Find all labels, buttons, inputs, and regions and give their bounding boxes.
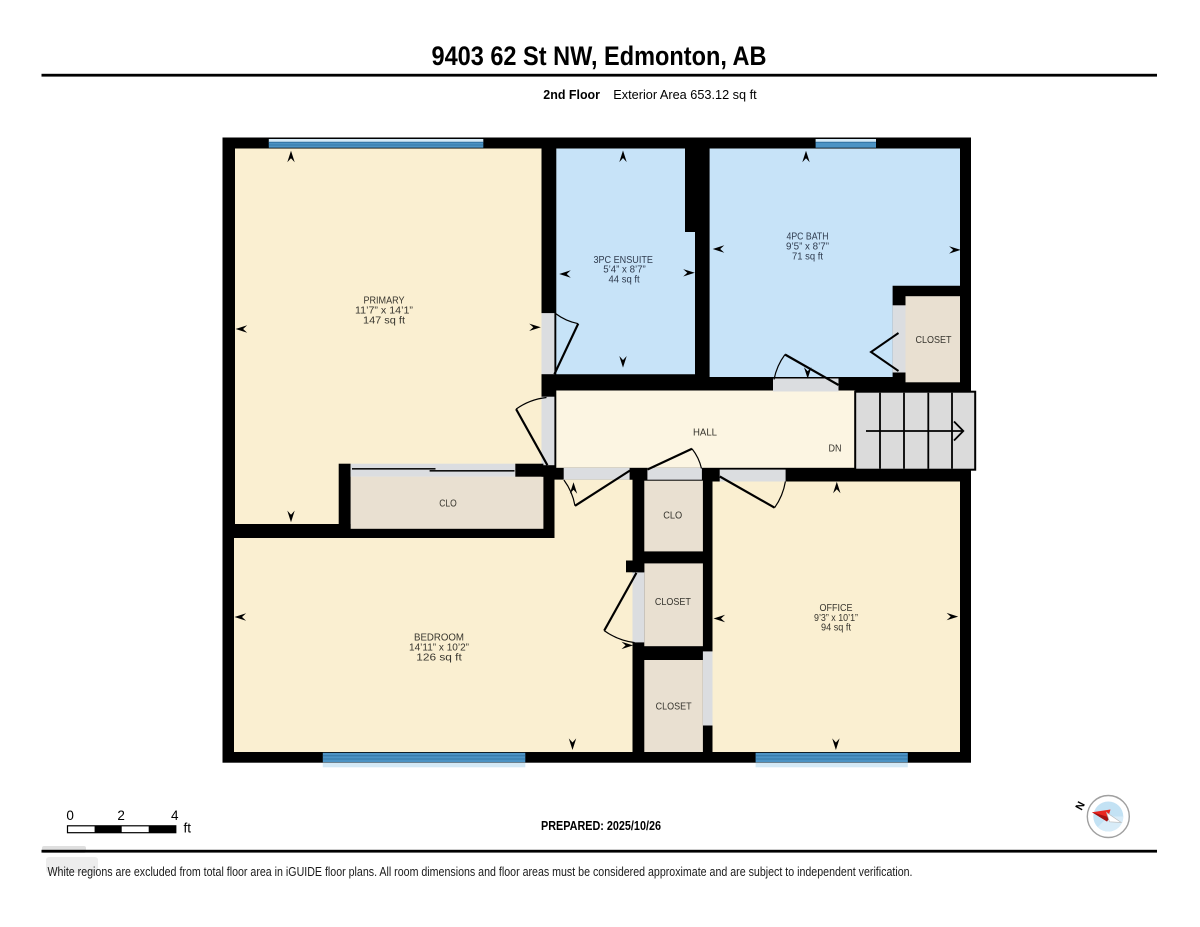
svg-text:CLO: CLO (439, 498, 457, 509)
svg-text:126 sq ft: 126 sq ft (416, 652, 462, 663)
svg-text:CLOSET: CLOSET (656, 702, 693, 713)
svg-text:HALL: HALL (693, 427, 717, 438)
svg-text:0: 0 (66, 808, 74, 823)
svg-text:CLO: CLO (663, 510, 682, 521)
svg-text:ft: ft (184, 821, 192, 836)
svg-text:PREPARED: 2025/10/26: PREPARED: 2025/10/26 (541, 819, 661, 833)
svg-text:4: 4 (171, 808, 179, 823)
svg-text:DN: DN (829, 444, 842, 455)
svg-text:44 sq ft: 44 sq ft (609, 275, 640, 286)
svg-text:CLOSET: CLOSET (655, 597, 692, 608)
svg-text:147 sq ft: 147 sq ft (363, 315, 405, 326)
svg-text:2nd Floor: 2nd Floor (543, 87, 600, 102)
svg-text:94 sq ft: 94 sq ft (821, 622, 851, 633)
svg-text:2: 2 (117, 808, 125, 823)
svg-text:White regions are excluded fro: White regions are excluded from total fl… (48, 864, 913, 879)
svg-text:9403 62 St NW, Edmonton, AB: 9403 62 St NW, Edmonton, AB (432, 41, 767, 71)
svg-text:CLOSET: CLOSET (916, 335, 953, 346)
svg-text:71 sq ft: 71 sq ft (792, 251, 823, 262)
svg-text:Exterior Area 653.12 sq ft: Exterior Area 653.12 sq ft (613, 87, 757, 102)
